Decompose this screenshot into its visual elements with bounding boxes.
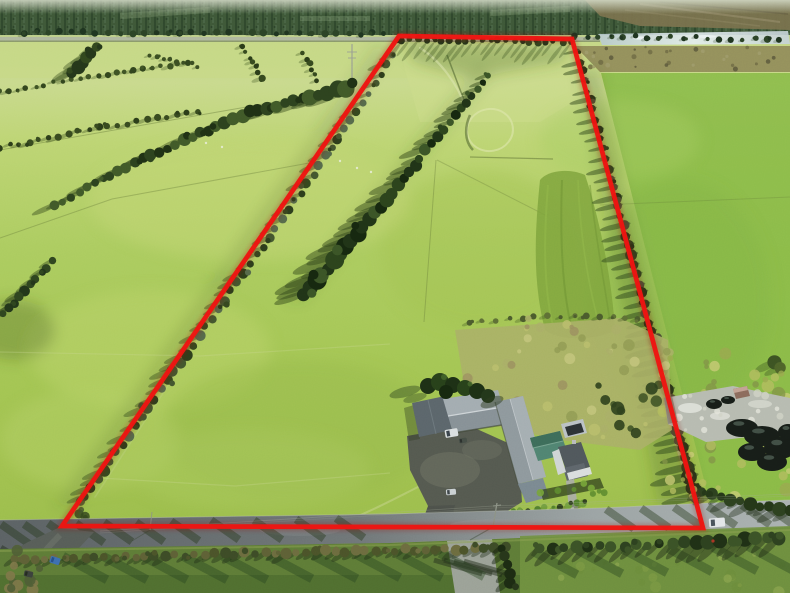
aerial-photo xyxy=(0,0,790,593)
photo-grain xyxy=(0,0,790,593)
aerial-photo-canvas xyxy=(0,0,790,593)
